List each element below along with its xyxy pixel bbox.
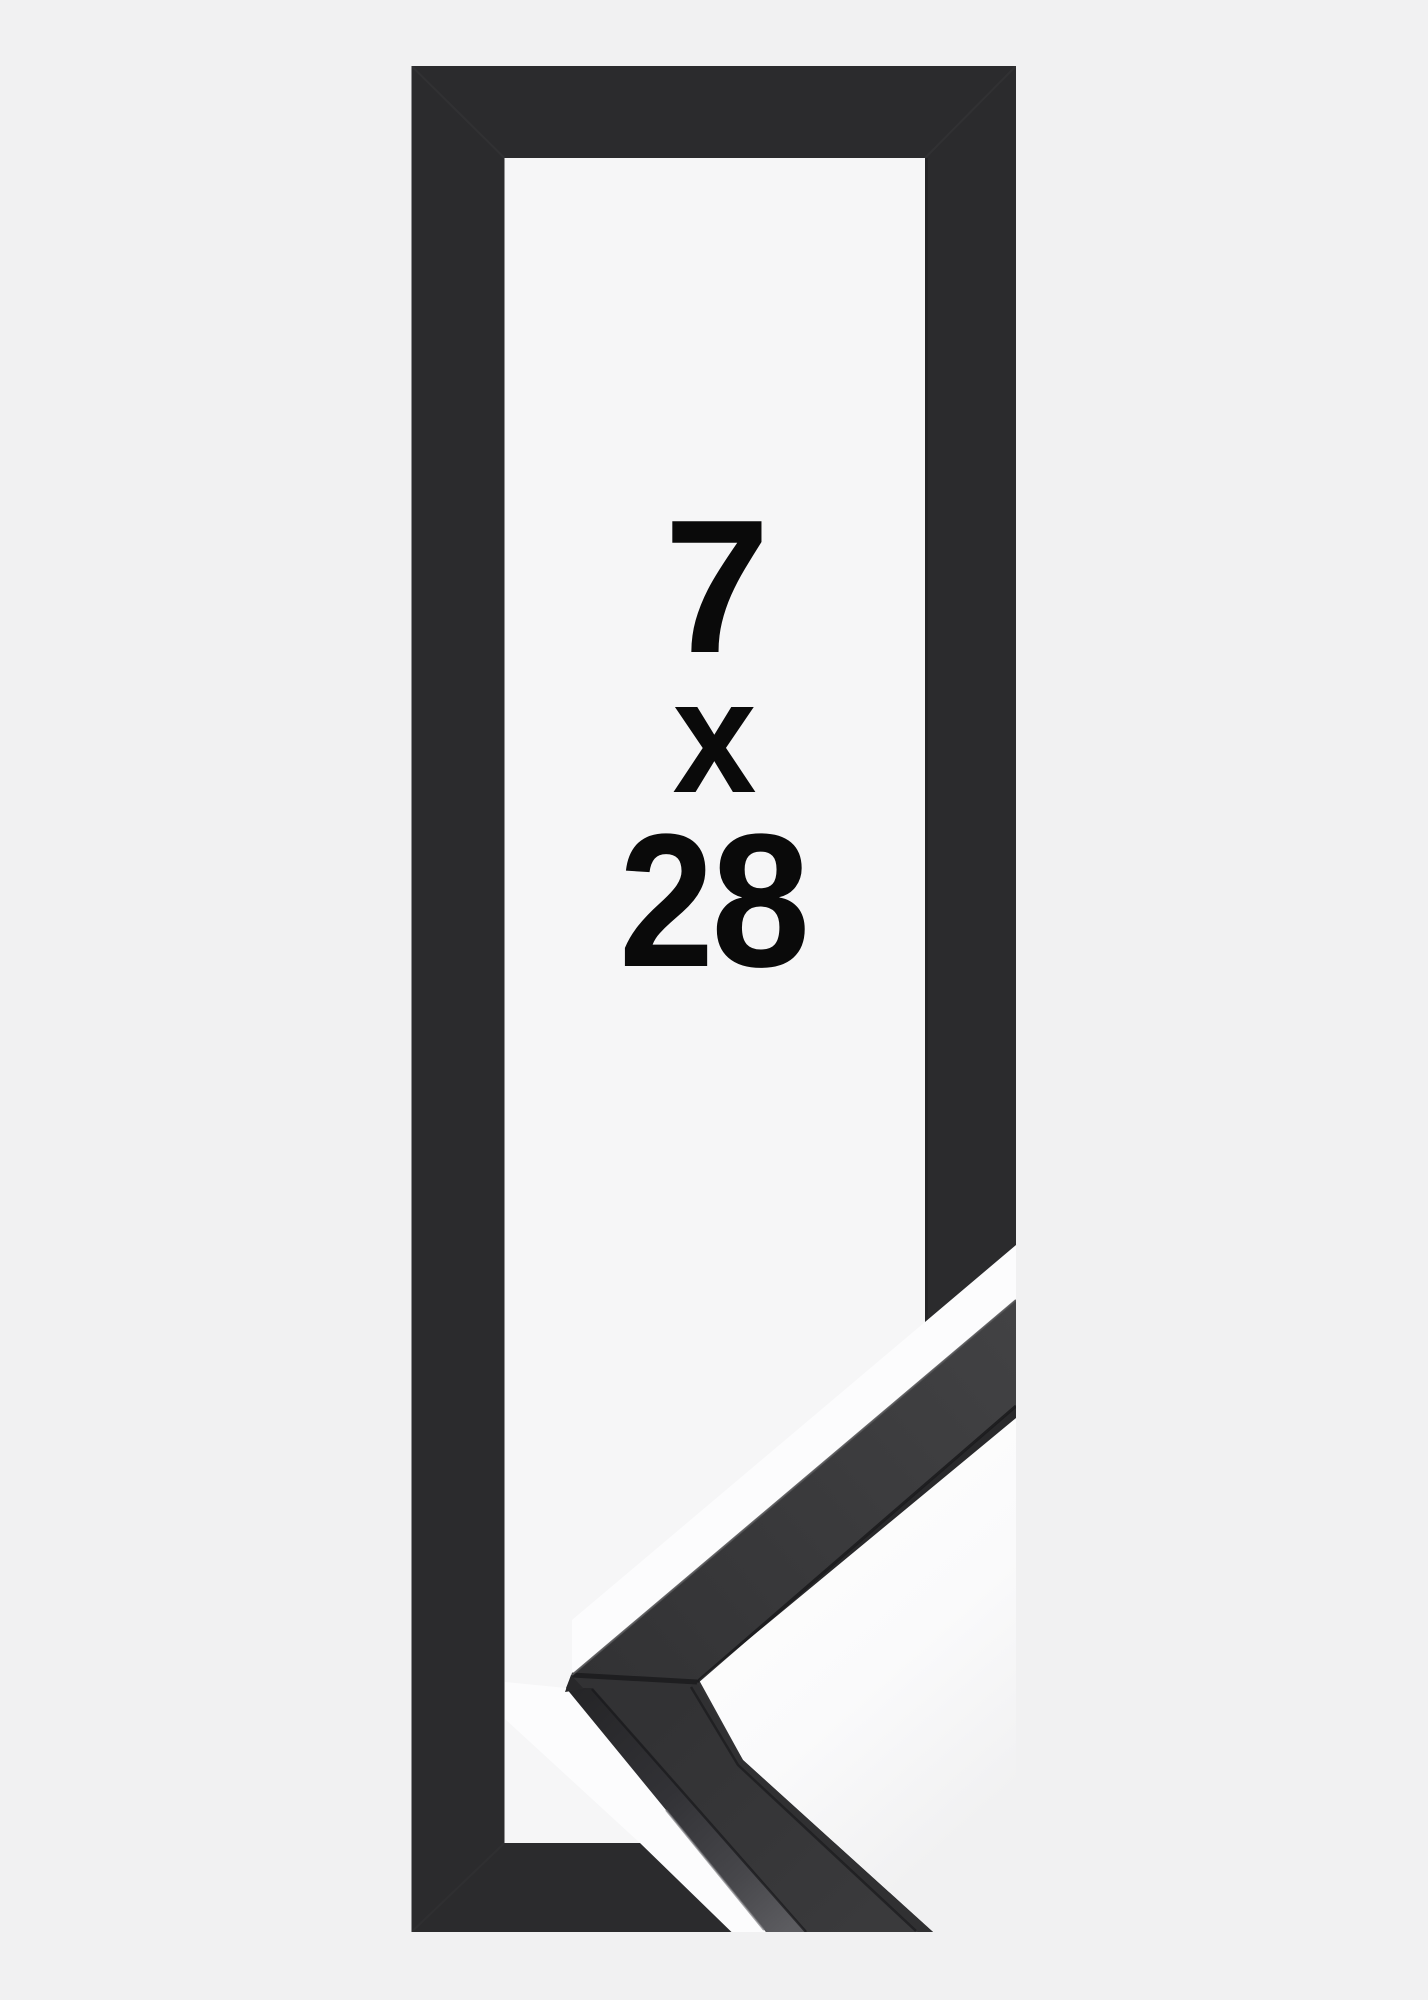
svg-text:2: 2 — [619, 795, 714, 1007]
svg-text:8: 8 — [711, 795, 810, 1007]
